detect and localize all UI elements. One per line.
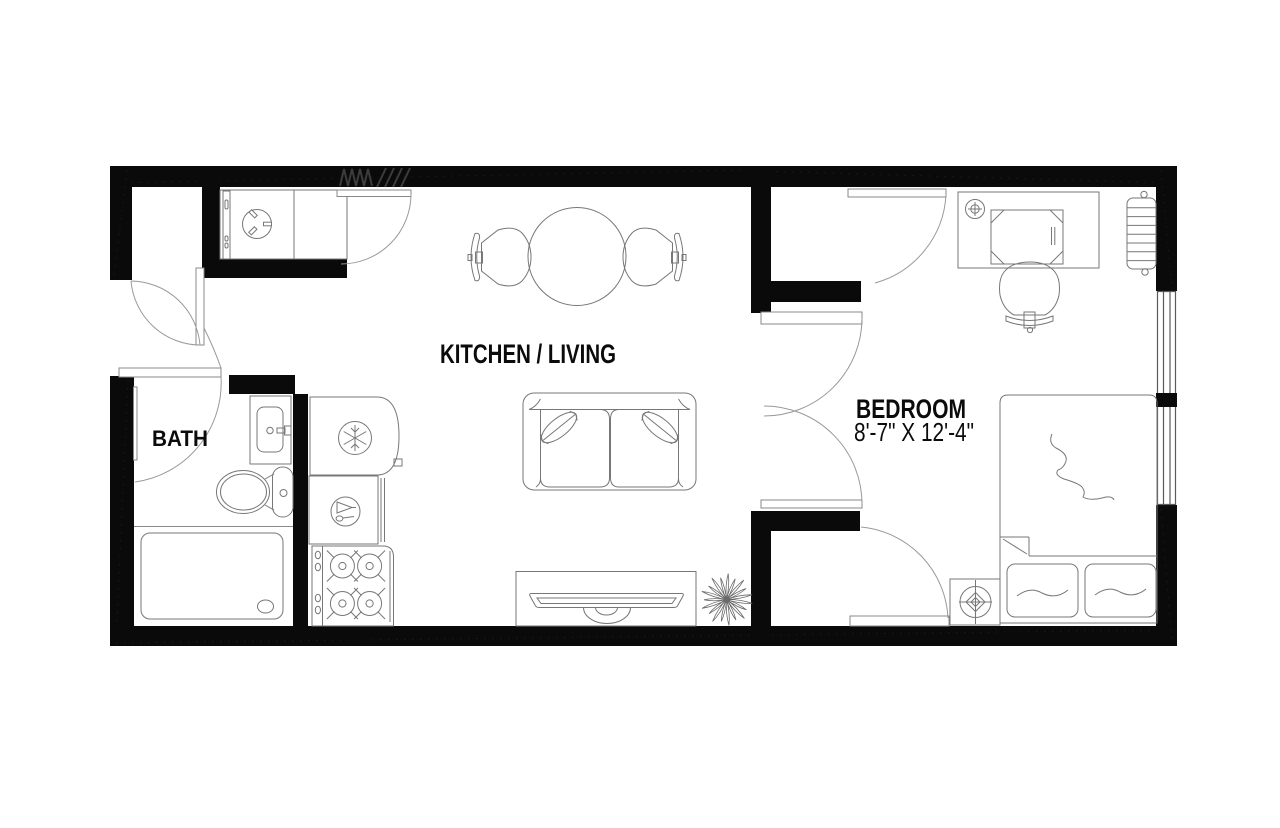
svg-text:8'-7" X 12'-4": 8'-7" X 12'-4" (854, 417, 974, 447)
svg-text:KITCHEN / LIVING: KITCHEN / LIVING (440, 339, 616, 369)
svg-text:BATH: BATH (152, 426, 208, 451)
